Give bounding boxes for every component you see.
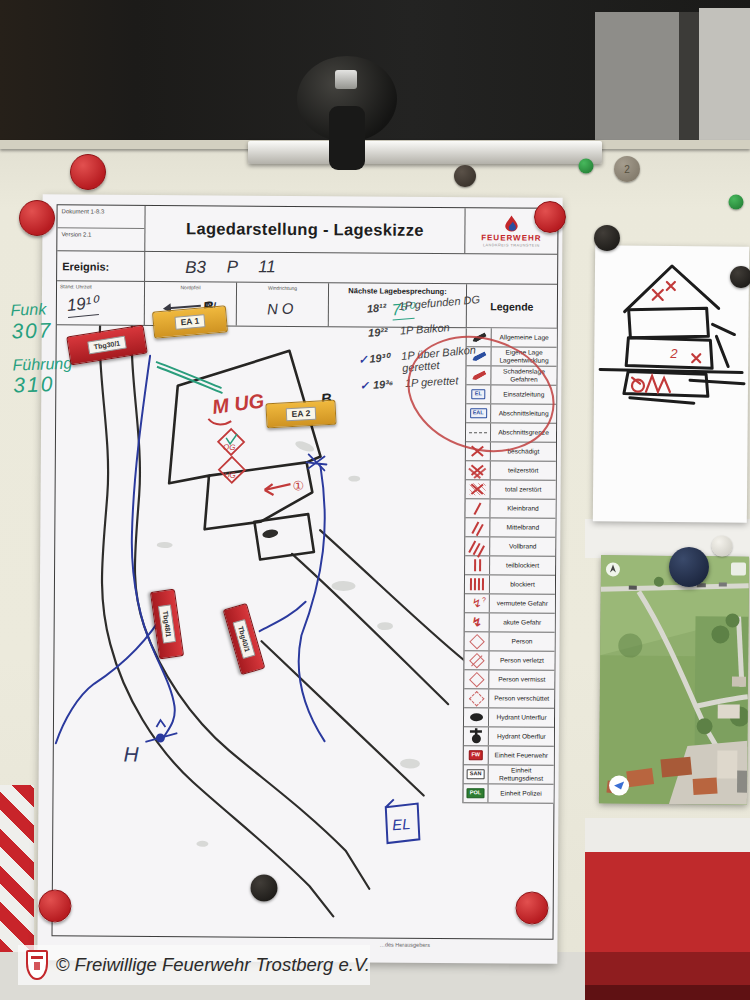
legend-label: akute Gefahr	[490, 613, 555, 631]
og-text: OG	[223, 443, 235, 452]
legend-symbol-diamond	[464, 670, 489, 688]
note-time: 19³⁰	[369, 350, 399, 376]
nordpfeil-label: Nordpfeil	[145, 284, 236, 291]
legend-label: vermutete Gefahr	[490, 594, 555, 612]
besprechung-label: Nächste Lagebesprechung:	[329, 286, 466, 296]
note-check: ✓	[359, 379, 369, 391]
magnet-green	[729, 195, 744, 210]
legend-symbol-slash3	[465, 537, 490, 555]
wall-panel-dark	[679, 12, 699, 142]
magnet-red	[19, 200, 55, 236]
legend-row: Person	[465, 632, 555, 652]
marker-ea2-label: EA 2	[285, 407, 316, 422]
legend-row: Hydrant Oberflur	[464, 727, 554, 747]
vehicle-red-panel	[585, 852, 750, 952]
watermark-text: © Freiwillige Feuerwehr Trostberg e.V.	[56, 954, 370, 976]
legend-row: Person vermisst	[464, 670, 554, 690]
legend-label: teilblockiert	[490, 556, 555, 574]
legend-label: Einheit Polizei	[488, 784, 553, 802]
legend-label: Vollbrand	[490, 537, 555, 555]
legend-row: Mittelbrand	[465, 518, 555, 538]
legend-symbol-box-fw: FW	[464, 746, 489, 764]
building-scribble	[262, 529, 279, 540]
ereignis-label: Ereignis:	[57, 251, 145, 281]
legend-label: Einheit Feuerwehr	[489, 746, 554, 764]
doc-version: Version 2.1	[57, 228, 144, 251]
legend-row: Person verletzt	[464, 651, 554, 671]
legend-symbol-slash1	[465, 499, 490, 517]
suction-mount-handle	[329, 106, 365, 170]
aerial-photo	[599, 555, 749, 804]
legend-symbol-box-san: SAN	[464, 765, 489, 783]
photo-watermark: © Freiwillige Feuerwehr Trostberg e.V.	[18, 945, 370, 985]
magnet-red	[39, 890, 72, 923]
m-ug-text: M UG	[211, 389, 265, 418]
legend-label: Hydrant Unterflur	[489, 708, 554, 726]
legend-row: blockiert	[465, 575, 555, 595]
legend-label: total zerstört	[491, 480, 556, 498]
vehicle-white-strip	[585, 818, 750, 852]
legend-row: Kleinbrand	[465, 499, 555, 519]
vehicle-red-panel-dark	[585, 952, 750, 985]
magnet-navy	[669, 547, 709, 587]
feuerwehr-crest-icon	[26, 950, 48, 980]
form-fine-print: …des Herausgebers	[379, 942, 429, 948]
green-hose-line	[156, 362, 223, 393]
note-time: 18¹²	[366, 300, 395, 314]
ug-text: UG	[224, 471, 236, 480]
note-time: 19³⁶	[373, 377, 402, 390]
legend-symbol-bars2	[465, 556, 490, 574]
svg-text:2: 2	[669, 346, 678, 361]
el-box: EL	[386, 799, 420, 843]
ereignis-value-cell: B3 P 11	[145, 252, 557, 284]
legend-row: teilzerstört	[466, 461, 556, 481]
legend-label: blockiert	[490, 575, 555, 593]
house-sketch: 2	[593, 245, 749, 522]
legend-label: Person vermisst	[489, 670, 554, 688]
legend-row: FW Einheit Feuerwehr	[464, 746, 554, 766]
marker-ea1-label: EA 1	[174, 314, 206, 330]
legend-symbol-diamond-slash	[464, 651, 489, 669]
marker-tbg40-label: Tbg40/1	[232, 619, 255, 660]
legend-symbol-bars4	[465, 575, 490, 593]
stand-label: Stand: Uhrzeit	[60, 283, 92, 289]
vehicle-red-panel-darker	[585, 985, 750, 1000]
legend-symbol-diamond	[465, 632, 490, 650]
doc-info-cell: Dokument 1-8.3 Version 2.1	[57, 205, 145, 251]
magnet-green	[579, 159, 594, 174]
magnet-black	[251, 875, 278, 902]
form-title: Lagedarstellung - Lageskizze	[145, 206, 465, 253]
legend-row: vermutete Gefahr	[465, 594, 555, 614]
legend-symbol-diamond-dash	[464, 689, 489, 707]
ereignis-handwriting: B3 P 11	[185, 257, 276, 278]
legend-row: Vollbrand	[465, 537, 555, 557]
magnet-black	[730, 266, 750, 288]
note-check	[357, 327, 365, 339]
wall-panel-light	[699, 8, 750, 142]
legend-row: SAN Einheit Rettungsdienst	[464, 765, 554, 785]
magnet-red	[534, 201, 566, 233]
wall-panel	[595, 12, 679, 142]
magnet-dark	[454, 165, 476, 187]
app-icon	[731, 562, 746, 575]
legend-symbol-zigzag-q	[465, 594, 490, 612]
note-check	[355, 303, 363, 316]
magnet-gray-label: 2	[624, 164, 630, 175]
el-box-label: EL	[392, 815, 411, 833]
legend-row: Hydrant Unterflur	[464, 708, 554, 728]
note-check: ✓	[358, 353, 367, 378]
legend-row: POL Einheit Polizei	[463, 784, 553, 804]
windrichtung-label: Windrichtung	[237, 285, 328, 292]
legend-row: Person verschüttet	[464, 689, 554, 709]
legend-symbol-zigzag	[465, 613, 490, 631]
legend-row: akute Gefahr	[465, 613, 555, 633]
aerial-photo-image	[599, 555, 749, 804]
magnet-red	[70, 154, 106, 190]
magnet-white	[712, 536, 733, 557]
legend-symbol-box-pol: POL	[463, 784, 488, 802]
flame-icon	[503, 214, 519, 232]
marker-tbg48-label: Tbg48/1	[158, 604, 176, 644]
magnet-gray: 2	[614, 156, 640, 182]
red-circle-annotation	[398, 328, 564, 460]
legend-symbol-text: POL	[467, 788, 484, 799]
legend-symbol-slash2	[465, 518, 490, 536]
legend-symbol-x3	[466, 480, 491, 498]
legend-label: Person verletzt	[489, 651, 554, 669]
legend-label: Kleinbrand	[490, 499, 555, 517]
logo-subtitle: LANDKREIS TRAUNSTEIN	[483, 243, 540, 247]
windrichtung-cell: Windrichtung NO	[237, 283, 329, 327]
warning-stripes	[0, 785, 34, 957]
legend-row: total zerstört	[466, 480, 556, 500]
windrichtung-handwriting: NO	[267, 299, 298, 317]
legend-label: Mittelbrand	[490, 518, 555, 536]
legend-symbol-text: FW	[468, 750, 483, 761]
logo-name: FEUERWEHR	[481, 233, 541, 242]
doc-number: Dokument 1-8.3	[57, 205, 144, 229]
legend-label: Person verschüttet	[489, 689, 554, 707]
circled-one: ①	[292, 478, 304, 493]
legend-label: Einheit Rettungsdienst	[489, 765, 554, 783]
legend-symbol-x2	[466, 461, 491, 479]
note-time: 19²²	[368, 325, 397, 339]
legend-symbol-hyd-u	[464, 708, 489, 726]
suction-mount-bolt	[335, 70, 357, 89]
fuehrung-number: 310	[13, 371, 106, 397]
marker-tbg30-label: Tbg30/1	[87, 336, 127, 355]
magnet-red	[516, 892, 549, 925]
board-rail	[248, 141, 602, 164]
legend-label: Person	[490, 632, 555, 650]
house-sketch-sheet: 2	[593, 245, 749, 522]
marker-ea2: EA 2	[265, 400, 336, 429]
legend-symbol-text: SAN	[467, 769, 485, 780]
legend-label: teilzerstört	[491, 461, 556, 479]
legend-row: teilblockiert	[465, 556, 555, 576]
legend-label: Hydrant Oberflur	[489, 727, 554, 745]
legend-symbol-hyd-o	[464, 727, 489, 745]
hydrant-letter: H	[123, 743, 139, 766]
magnet-black	[594, 225, 620, 251]
